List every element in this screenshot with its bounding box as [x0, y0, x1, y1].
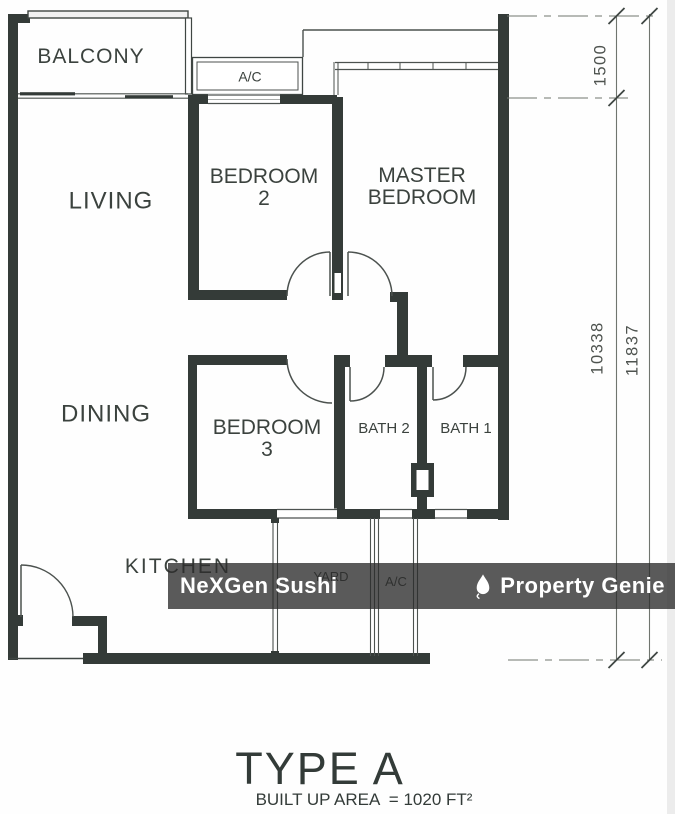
flame-pin-icon [474, 574, 492, 599]
scan-edge [667, 0, 675, 814]
watermark-left-text: NeXGen Sushi [180, 573, 338, 599]
room-label-bedroom3: BEDROOM 3 [213, 417, 322, 461]
entrance-door-arc [21, 565, 73, 617]
watermark-bar: NeXGen Sushi Property Genie [168, 563, 675, 609]
bedroom3-door-arc [287, 359, 332, 403]
master-door-arc [348, 252, 392, 296]
room-label-dining: DINING [61, 401, 151, 426]
floor-plan-image: BALCONY A/C LIVING BEDROOM 2 MASTER BEDR… [0, 0, 675, 814]
room-label-balcony: BALCONY [37, 46, 144, 68]
watermark-right-text: Property Genie [500, 573, 665, 599]
room-label-master-bedroom: MASTER BEDROOM [368, 165, 477, 209]
dimension-text-1500: 1500 [592, 44, 611, 87]
room-label-living: LIVING [69, 188, 154, 213]
door-swings [287, 252, 466, 403]
bath2-door-arc [350, 367, 384, 401]
built-up-area-text: BUILT UP AREA = 1020 FT² [256, 790, 473, 810]
room-label-bath2: BATH 2 [358, 421, 409, 437]
dimension-text-11837: 11837 [624, 324, 643, 376]
dimension-text-10338: 10338 [589, 321, 608, 374]
plan-type-title: TYPE A [235, 743, 405, 795]
bedroom2-door-arc [287, 252, 330, 296]
room-label-bedroom2: BEDROOM 2 [210, 166, 319, 210]
entrance-walls [9, 565, 107, 659]
room-label-ac-top: A/C [238, 70, 261, 85]
room-label-bath1: BATH 1 [440, 421, 491, 437]
bath1-door-arc [433, 367, 466, 400]
watermark-right: Property Genie [474, 573, 665, 599]
